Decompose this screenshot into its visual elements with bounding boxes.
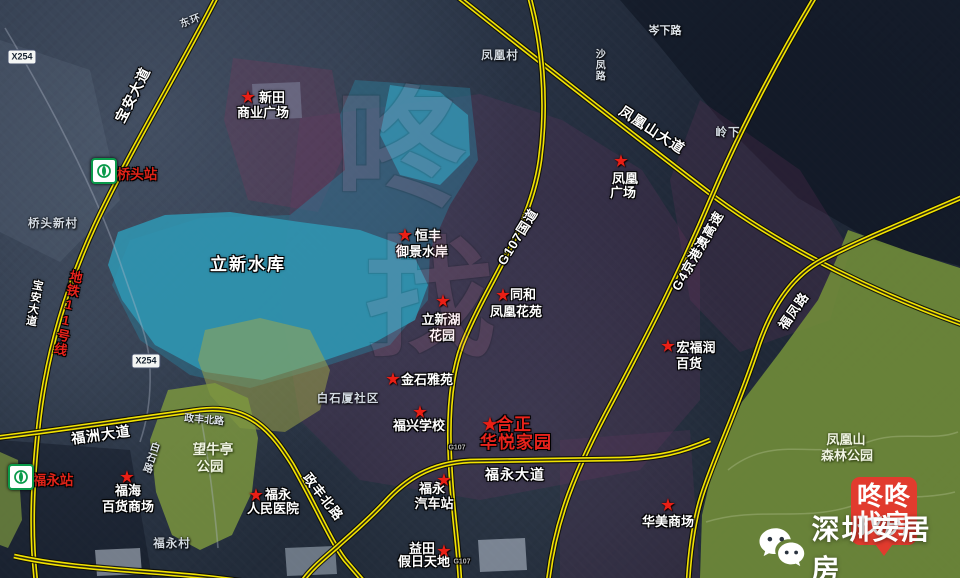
fuhai-label-2: 百货商场 (102, 500, 154, 514)
map-labels-layer: 新田商业广场恒丰御景水岸同和凤凰花苑立新湖花园金石雅苑凤凰广场宏福润百货福兴学校… (0, 0, 960, 578)
hezheng-huayue-label-2: 华悦家园 (480, 434, 552, 452)
fuzhou-avenue-label: 福洲大道 (70, 424, 131, 447)
g4-expressway-label: G4京港澳高速 (670, 209, 726, 293)
fenghuangshan-park-label-2: 森林公园 (821, 449, 873, 463)
xintian-plaza-label-1: 新田 (259, 91, 285, 105)
fuyong-hospital-star[interactable]: ★ (249, 486, 262, 504)
wechat-icon (758, 526, 806, 570)
fuyong-station-label: 福永站 (33, 474, 74, 488)
fuyong-bus-station-star[interactable]: ★ (437, 471, 450, 489)
baoan-avenue-label: 宝安大道 (113, 65, 153, 125)
fenghuangshan-park-label-1: 凤凰山 (826, 433, 865, 447)
hezheng-star[interactable]: ★ (482, 415, 497, 435)
g107-national-road-label: G107国道 (495, 206, 540, 267)
hongfurun-star[interactable]: ★ (661, 337, 674, 355)
satellite-map[interactable]: 新田商业广场恒丰御景水岸同和凤凰花苑立新湖花园金石雅苑凤凰广场宏福润百货福兴学校… (0, 0, 960, 578)
tonghe-label-2: 凤凰花苑 (490, 305, 542, 319)
fuyong-hospital-label-2: 人民医院 (247, 502, 299, 516)
baishi-road-label: 白石路 (139, 440, 159, 475)
jinshi-yayuan-star[interactable]: ★ (386, 370, 399, 388)
cenxia-road-label: 岑下路 (649, 26, 682, 38)
shenzhen-metro-glyph (96, 163, 112, 179)
hongfurun-label-2: 百货 (676, 357, 702, 371)
fuhai-star[interactable]: ★ (120, 468, 133, 486)
fenghuang-plaza-star[interactable]: ★ (614, 152, 627, 170)
hezheng-huayue-label-1: 合正 (496, 416, 532, 434)
zhengfeng-north-road-label: 政丰北路 (300, 471, 345, 524)
yitian-star[interactable]: ★ (437, 542, 450, 560)
g107-road-text-1: G107 (448, 444, 465, 451)
shield-x254-south: X254 (131, 354, 160, 369)
wangniuting-park-label-1: 望牛亭 (193, 443, 234, 457)
fuyong-avenue-label: 福永大道 (485, 468, 545, 483)
xintian-plaza-star[interactable]: ★ (241, 88, 254, 106)
watermark-ghost-2: 找 (365, 232, 495, 369)
huamei-mall-star[interactable]: ★ (661, 496, 674, 514)
huamei-mall-label: 华美商场 (642, 515, 694, 529)
fenghuang-village-label: 凤凰村 (481, 50, 519, 62)
fenghuang-plaza-label-2: 广场 (610, 186, 636, 200)
brand-text: 深圳安居房 (812, 508, 960, 578)
jinshi-yayuan-label: 金石雅苑 (401, 373, 453, 387)
badge-line1: 咚咚 (857, 483, 911, 511)
tonghe-star[interactable]: ★ (496, 286, 509, 304)
metro-line-11-label: 地铁11号线 (51, 269, 83, 358)
zhengfeng-north-road-label-2: 政丰北路 (184, 414, 225, 428)
hengfeng-star[interactable]: ★ (398, 226, 411, 244)
shenzhen-metro-glyph (13, 469, 29, 485)
fuyong-bus-label-2: 汽车站 (414, 497, 453, 511)
brand-footer: 深圳安居房 (758, 508, 960, 578)
fuyong-station-logo[interactable] (8, 464, 34, 490)
wangniuting-park-label-2: 公园 (197, 460, 224, 474)
fuxing-school-label: 福兴学校 (393, 419, 445, 433)
shafeng-road-label: 沙凤路 (593, 49, 604, 82)
g107-road-text-2: G107 (453, 558, 470, 565)
fuyong-hospital-label-1: 福永 (265, 488, 291, 502)
qiaotou-station-logo[interactable] (91, 158, 117, 184)
fenghuang-plaza-label-1: 凤凰 (612, 172, 638, 186)
qiaotou-station-label: 桥头站 (117, 168, 158, 182)
xintian-plaza-label-2: 商业广场 (237, 106, 289, 120)
fufeng-road-label: 福凤路 (776, 290, 811, 332)
tonghe-label-1: 同和 (510, 288, 536, 302)
hongfurun-label-1: 宏福润 (676, 341, 715, 355)
baoan-avenue-label-2: 宝安大道 (23, 278, 43, 327)
fuyong-village-label: 福永村 (153, 538, 191, 550)
fenghuangshan-avenue-label: 凤凰山大道 (617, 103, 688, 156)
baishixia-community-label: 白石厦社区 (317, 393, 380, 405)
fuhai-label-1: 福海 (115, 484, 141, 498)
donghuan-label: 东环 (179, 13, 203, 30)
fuxing-school-star[interactable]: ★ (413, 403, 426, 421)
lingxia-label: 岭下 (716, 127, 741, 139)
watermark-ghost-1: 咚 (335, 82, 465, 219)
shield-x254-north: X254 (7, 50, 36, 65)
lixin-reservoir-label: 立新水库 (210, 256, 286, 274)
qiaotou-xincun-label: 桥头新村 (28, 218, 78, 230)
lixinhu-garden-star[interactable]: ★ (436, 292, 449, 310)
